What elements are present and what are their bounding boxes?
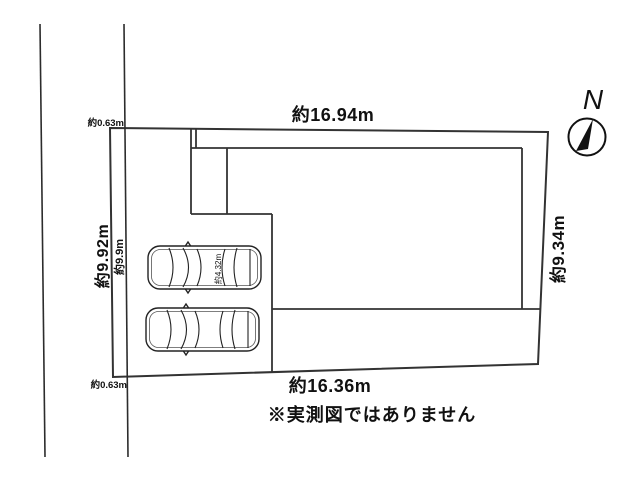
car-length-label: 約4.32m	[213, 254, 223, 285]
plot-survey-diagram-page: 約4.32m 約16.94m 約16.36m 約9.34m 約9.92m 約9.…	[0, 0, 633, 480]
car-top-view-2	[146, 304, 259, 355]
dimension-right-label: 約9.34m	[548, 215, 568, 283]
north-label: N	[583, 84, 604, 115]
road-edge-line-west	[40, 24, 45, 457]
north-arrow: N	[569, 84, 606, 156]
strip-width-top-label: 約0.63m	[88, 117, 124, 129]
survey-disclaimer-note: ※実測図ではありません	[268, 404, 476, 425]
dimension-left-strip-label: 約9.9m	[112, 239, 126, 275]
car-top-view-1	[148, 242, 261, 293]
dimension-bottom-label: 約16.36m	[289, 375, 372, 396]
dimension-top-label: 約16.94m	[292, 104, 375, 125]
plot-survey-diagram: 約4.32m 約16.94m 約16.36m 約9.34m 約9.92m 約9.…	[0, 0, 633, 480]
dimension-left-outer-label: 約9.92m	[93, 224, 112, 288]
strip-width-bottom-label: 約0.63m	[91, 379, 127, 391]
